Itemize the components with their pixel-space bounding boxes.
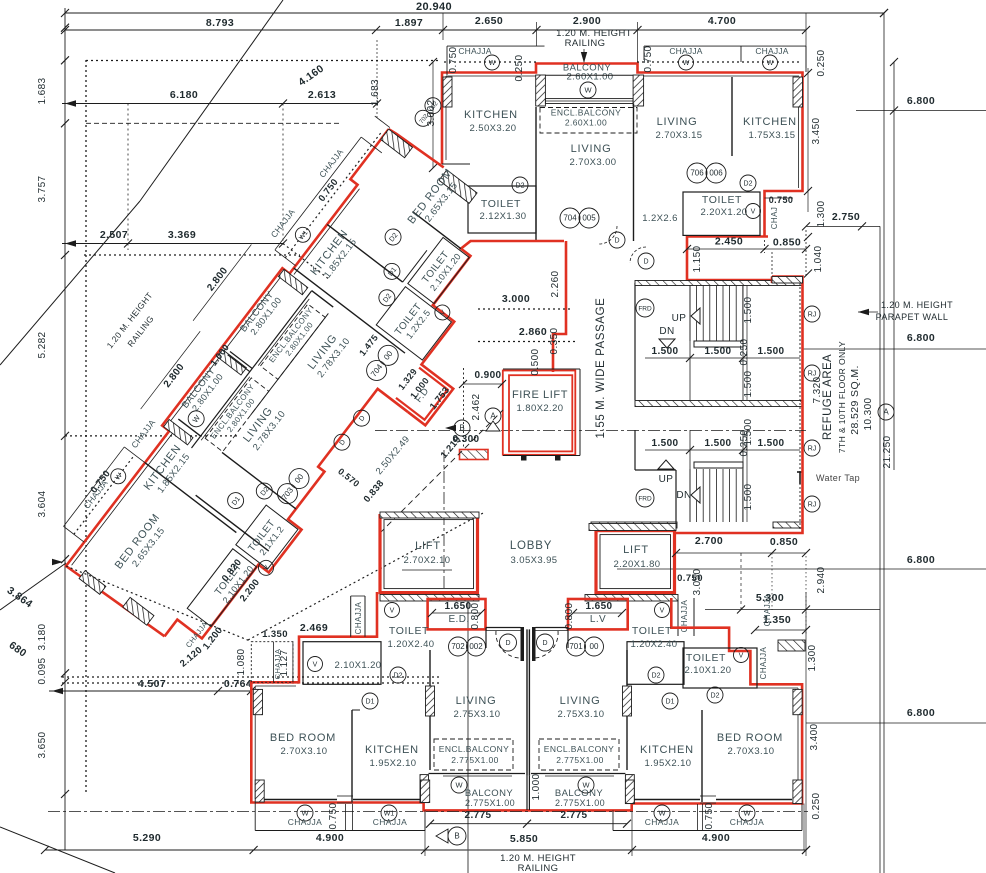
svg-text:CHAJJA: CHAJJA: [669, 46, 702, 56]
svg-text:TOILET: TOILET: [702, 194, 742, 206]
svg-text:1.350: 1.350: [262, 629, 288, 640]
svg-text:2.650: 2.650: [475, 15, 503, 27]
svg-text:6.800: 6.800: [907, 554, 935, 566]
svg-text:LIFT: LIFT: [415, 540, 441, 552]
svg-text:ENCL.BALCONY: ENCL.BALCONY: [544, 744, 614, 754]
svg-text:0.800: 0.800: [564, 602, 575, 629]
svg-text:W: W: [455, 781, 463, 790]
svg-text:0.250: 0.250: [816, 49, 827, 76]
svg-text:1.683: 1.683: [370, 79, 381, 106]
svg-text:1.300: 1.300: [807, 644, 818, 671]
svg-text:2.75X3.10: 2.75X3.10: [558, 709, 605, 720]
svg-text:0.850: 0.850: [770, 536, 798, 548]
svg-text:2.613: 2.613: [308, 89, 336, 101]
svg-text:D2: D2: [711, 693, 720, 700]
svg-text:2.700: 2.700: [695, 535, 723, 547]
svg-text:CHAJJA: CHAJJA: [288, 817, 323, 827]
svg-text:2.10X1.20: 2.10X1.20: [685, 665, 732, 676]
svg-text:DN: DN: [676, 490, 691, 501]
svg-text:LIFT: LIFT: [623, 544, 649, 556]
svg-text:1.500: 1.500: [757, 346, 784, 357]
svg-text:2.60X1.00: 2.60X1.00: [567, 72, 614, 83]
svg-text:7TH & 10TH FLOOR ONLY: 7TH & 10TH FLOOR ONLY: [837, 341, 847, 453]
svg-text:1.20X2.40: 1.20X2.40: [388, 639, 435, 650]
svg-text:1.500: 1.500: [651, 346, 678, 357]
svg-text:1.80X2.20: 1.80X2.20: [517, 403, 564, 414]
svg-text:2.20X1.80: 2.20X1.80: [614, 559, 661, 570]
svg-text:6.800: 6.800: [907, 95, 935, 107]
svg-text:B: B: [459, 424, 464, 433]
svg-text:1.080: 1.080: [236, 648, 247, 675]
svg-text:A: A: [883, 408, 889, 417]
svg-text:CHAJJA: CHAJJA: [458, 46, 491, 56]
svg-text:UP: UP: [659, 474, 674, 485]
svg-text:20.940: 20.940: [416, 1, 452, 13]
svg-text:ENCL.BALCONY: ENCL.BALCONY: [439, 744, 509, 754]
svg-text:2.775X1.00: 2.775X1.00: [451, 755, 498, 765]
svg-text:REFUGE AREA: REFUGE AREA: [822, 354, 834, 440]
svg-text:3.180: 3.180: [37, 623, 48, 650]
svg-text:0.750: 0.750: [328, 802, 339, 829]
svg-text:RJ: RJ: [808, 312, 817, 319]
svg-text:0.750: 0.750: [643, 45, 654, 72]
svg-text:1.650: 1.650: [585, 601, 612, 612]
svg-text:TOILET: TOILET: [686, 652, 726, 664]
svg-text:2.775: 2.775: [464, 810, 491, 821]
svg-text:CHAJJA: CHAJJA: [373, 817, 408, 827]
svg-text:PARAPET WALL: PARAPET WALL: [876, 312, 949, 322]
svg-text:3.400: 3.400: [809, 723, 820, 750]
svg-text:Water Tap: Water Tap: [816, 473, 860, 483]
svg-text:FRD: FRD: [638, 496, 652, 503]
svg-text:702: 702: [451, 642, 465, 651]
svg-text:1.20X2.40: 1.20X2.40: [631, 639, 678, 650]
svg-text:6.800: 6.800: [907, 332, 935, 344]
svg-text:LIVING: LIVING: [571, 143, 612, 155]
svg-text:10.300: 10.300: [863, 397, 874, 430]
svg-text:0.250: 0.250: [739, 429, 750, 456]
svg-text:W: W: [584, 86, 592, 95]
svg-text:KITCHEN: KITCHEN: [640, 744, 694, 756]
svg-text:1.500: 1.500: [704, 346, 731, 357]
svg-text:1.683: 1.683: [37, 77, 48, 104]
svg-text:0.350: 0.350: [549, 327, 560, 354]
svg-text:5.290: 5.290: [133, 832, 161, 844]
svg-text:V: V: [313, 662, 318, 669]
svg-text:1.500: 1.500: [704, 438, 731, 449]
svg-text:006: 006: [709, 169, 723, 178]
svg-text:1.500: 1.500: [743, 296, 754, 323]
svg-text:2.775X1.00: 2.775X1.00: [556, 755, 603, 765]
svg-text:2.900: 2.900: [573, 15, 601, 27]
svg-text:1.500: 1.500: [743, 483, 754, 510]
svg-text:V: V: [390, 608, 395, 615]
svg-text:KITCHEN: KITCHEN: [743, 116, 797, 128]
svg-text:005: 005: [582, 214, 596, 223]
svg-text:0.900: 0.900: [474, 370, 501, 381]
svg-text:2.750: 2.750: [832, 211, 860, 223]
svg-text:2.775X1.00: 2.775X1.00: [465, 798, 515, 808]
svg-text:1.300: 1.300: [816, 200, 827, 227]
svg-text:1.2X2.6: 1.2X2.6: [642, 213, 678, 224]
svg-text:0.250: 0.250: [514, 54, 525, 81]
svg-text:2.10X1.20: 2.10X1.20: [335, 660, 382, 671]
svg-text:LIVING: LIVING: [560, 695, 601, 707]
svg-text:1.95X2.10: 1.95X2.10: [370, 758, 417, 769]
svg-text:L.V: L.V: [590, 614, 606, 625]
svg-text:CHAJJA: CHAJJA: [354, 601, 363, 634]
svg-text:CHAJJA: CHAJJA: [755, 46, 788, 56]
svg-text:DN: DN: [659, 326, 674, 337]
svg-text:D: D: [505, 640, 510, 647]
svg-text:LOBBY: LOBBY: [510, 540, 552, 552]
svg-text:D: D: [643, 259, 648, 266]
svg-text:W: W: [683, 60, 690, 67]
svg-text:CHAJJA: CHAJJA: [645, 817, 680, 827]
svg-text:2.70X3.15: 2.70X3.15: [656, 130, 703, 141]
svg-text:3.650: 3.650: [37, 731, 48, 758]
svg-text:E.D.: E.D.: [448, 614, 469, 625]
svg-text:2.20X1.20: 2.20X1.20: [701, 207, 748, 218]
svg-text:D2: D2: [652, 673, 661, 680]
svg-text:V: V: [751, 209, 756, 216]
svg-text:D2: D2: [744, 181, 753, 188]
svg-text:2.50X3.20: 2.50X3.20: [470, 123, 517, 134]
svg-text:5.282: 5.282: [37, 331, 48, 358]
svg-text:1.500: 1.500: [743, 370, 754, 397]
svg-text:1.500: 1.500: [651, 438, 678, 449]
svg-text:RAILING: RAILING: [518, 863, 559, 873]
svg-text:002: 002: [469, 642, 483, 651]
svg-text:4.900: 4.900: [316, 832, 344, 844]
svg-text:0.095: 0.095: [37, 657, 48, 684]
svg-text:D: D: [614, 238, 619, 245]
svg-text:5.850: 5.850: [510, 833, 538, 845]
svg-text:0.250: 0.250: [739, 338, 750, 365]
svg-text:2.70X2.10: 2.70X2.10: [404, 555, 451, 566]
svg-text:D2: D2: [394, 673, 403, 680]
svg-text:701: 701: [569, 642, 583, 651]
svg-text:4.700: 4.700: [708, 15, 736, 27]
svg-text:2.60X1.00: 2.60X1.00: [565, 118, 607, 128]
svg-text:0.850: 0.850: [773, 237, 801, 249]
svg-text:ENCL.BALCONY: ENCL.BALCONY: [551, 108, 621, 118]
svg-text:TOILET: TOILET: [632, 625, 672, 637]
svg-text:B: B: [454, 832, 459, 841]
svg-text:2.462: 2.462: [471, 393, 482, 420]
svg-text:BED ROOM: BED ROOM: [270, 732, 336, 744]
svg-text:BED ROOM: BED ROOM: [717, 732, 783, 744]
svg-text:28.529 SQ.M.: 28.529 SQ.M.: [849, 365, 861, 435]
svg-text:RAILING: RAILING: [565, 38, 606, 49]
svg-text:CHAJJA: CHAJJA: [763, 593, 772, 626]
svg-text:2.70X3.10: 2.70X3.10: [728, 746, 775, 757]
svg-text:1.040: 1.040: [813, 245, 824, 272]
svg-text:2.450: 2.450: [715, 236, 743, 248]
svg-text:0.750: 0.750: [448, 46, 459, 73]
svg-text:V: V: [660, 608, 665, 615]
svg-text:LIVING: LIVING: [657, 116, 698, 128]
svg-text:0.800: 0.800: [470, 602, 481, 629]
svg-text:3.604: 3.604: [37, 490, 48, 517]
svg-text:TOILET: TOILET: [481, 198, 521, 210]
svg-text:2.775X1.00: 2.775X1.00: [555, 798, 605, 808]
svg-text:1.20 M. HEIGHT: 1.20 M. HEIGHT: [881, 300, 953, 310]
svg-text:TOILET: TOILET: [389, 625, 429, 637]
svg-text:1.897: 1.897: [395, 17, 423, 29]
svg-text:KITCHEN: KITCHEN: [464, 109, 518, 121]
svg-text:3.000: 3.000: [502, 293, 530, 305]
svg-text:0.764: 0.764: [224, 678, 252, 690]
svg-text:1.95X2.10: 1.95X2.10: [645, 758, 692, 769]
svg-text:3.757: 3.757: [37, 175, 48, 202]
svg-text:0.250: 0.250: [811, 792, 822, 819]
svg-text:8.793: 8.793: [206, 17, 234, 29]
svg-text:RJ: RJ: [808, 502, 817, 509]
svg-text:3.05X3.95: 3.05X3.95: [511, 555, 558, 566]
svg-text:V: V: [739, 653, 744, 660]
svg-text:2.70X3.00: 2.70X3.00: [570, 157, 617, 168]
svg-text:CHAJJA: CHAJJA: [759, 646, 768, 679]
svg-text:1.500: 1.500: [757, 438, 784, 449]
svg-text:FRD: FRD: [638, 306, 652, 313]
svg-text:2.12X1.30: 2.12X1.30: [480, 211, 527, 222]
svg-text:CHAJ: CHAJ: [770, 207, 779, 230]
svg-text:1.127: 1.127: [279, 649, 290, 676]
svg-text:2.469: 2.469: [300, 622, 328, 634]
svg-text:00: 00: [590, 642, 599, 651]
svg-text:2.70X3.10: 2.70X3.10: [281, 746, 328, 757]
svg-text:D1: D1: [666, 699, 675, 706]
svg-text:KITCHEN: KITCHEN: [365, 744, 419, 756]
svg-text:704: 704: [563, 214, 577, 223]
svg-text:W: W: [489, 60, 496, 67]
svg-text:3.369: 3.369: [168, 229, 196, 241]
svg-text:0.750: 0.750: [704, 802, 715, 829]
svg-text:FIRE LIFT: FIRE LIFT: [512, 389, 568, 401]
svg-text:0.750: 0.750: [769, 195, 794, 205]
svg-text:RJ: RJ: [808, 446, 817, 453]
svg-text:3.450: 3.450: [811, 117, 822, 144]
svg-text:0.750: 0.750: [677, 573, 703, 584]
svg-text:2.260: 2.260: [550, 270, 561, 297]
svg-text:D2: D2: [516, 183, 525, 190]
svg-text:4.900: 4.900: [702, 832, 730, 844]
svg-text:UP: UP: [672, 313, 687, 324]
svg-text:2.775: 2.775: [560, 810, 587, 821]
svg-text:2.507: 2.507: [100, 229, 128, 241]
svg-text:706: 706: [690, 169, 704, 178]
svg-text:7.320: 7.320: [812, 376, 823, 403]
svg-text:1.650: 1.650: [444, 601, 471, 612]
svg-text:1.000: 1.000: [531, 773, 542, 800]
svg-text:D: D: [542, 640, 547, 647]
svg-text:D1: D1: [366, 699, 375, 706]
svg-text:1.55 M. WIDE PASSAGE: 1.55 M. WIDE PASSAGE: [595, 298, 607, 439]
svg-text:6.180: 6.180: [170, 89, 198, 101]
svg-text:LIVING: LIVING: [456, 695, 497, 707]
svg-text:2.940: 2.940: [816, 566, 827, 593]
svg-text:21.250: 21.250: [882, 435, 893, 468]
svg-text:4.507: 4.507: [138, 678, 166, 690]
svg-text:6.800: 6.800: [907, 707, 935, 719]
svg-text:2.75X3.10: 2.75X3.10: [454, 709, 501, 720]
svg-text:2.860: 2.860: [519, 326, 547, 338]
svg-text:CHAJJA: CHAJJA: [730, 817, 765, 827]
svg-text:0.500: 0.500: [530, 348, 541, 375]
svg-text:1.75X3.15: 1.75X3.15: [749, 130, 796, 141]
svg-text:W: W: [767, 60, 774, 67]
svg-text:1.150: 1.150: [692, 245, 703, 272]
